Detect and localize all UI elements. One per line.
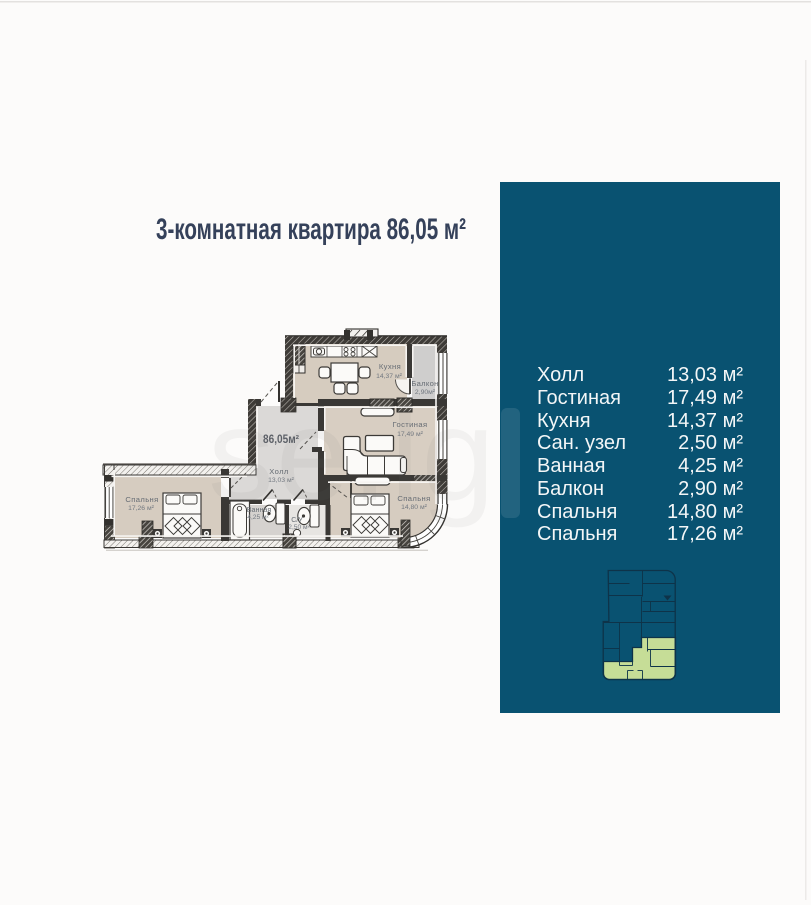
svg-text:Гостиная: Гостиная <box>537 387 621 409</box>
svg-text:Кухня: Кухня <box>379 362 401 371</box>
svg-text:se.lg: se.lg <box>208 381 497 528</box>
svg-text:17,26 м²: 17,26 м² <box>667 523 743 545</box>
svg-text:Ванная: Ванная <box>537 455 606 477</box>
svg-text:Спальня: Спальня <box>125 495 158 504</box>
svg-text:Балкон: Балкон <box>537 478 604 500</box>
svg-text:14,80 м²: 14,80 м² <box>667 501 743 523</box>
svg-text:2,90 м²: 2,90 м² <box>678 478 743 500</box>
svg-text:4,25 м²: 4,25 м² <box>678 455 743 477</box>
svg-text:3-комнатная квартира 86,05 м²: 3-комнатная квартира 86,05 м² <box>156 213 466 246</box>
svg-text:17,26 м²: 17,26 м² <box>128 505 155 512</box>
svg-text:13,03 м²: 13,03 м² <box>667 364 743 386</box>
svg-text:Спальня: Спальня <box>537 523 617 545</box>
svg-text:14,37 м²: 14,37 м² <box>376 373 403 380</box>
svg-text:Холл: Холл <box>537 364 584 386</box>
svg-text:2,50 м²: 2,50 м² <box>678 432 743 454</box>
svg-text:14,37 м²: 14,37 м² <box>667 410 743 432</box>
svg-text:Кухня: Кухня <box>537 410 591 432</box>
svg-text:17,49 м²: 17,49 м² <box>667 387 743 409</box>
svg-text:Сан. узел: Сан. узел <box>537 432 626 454</box>
svg-text:Спальня: Спальня <box>537 501 617 523</box>
